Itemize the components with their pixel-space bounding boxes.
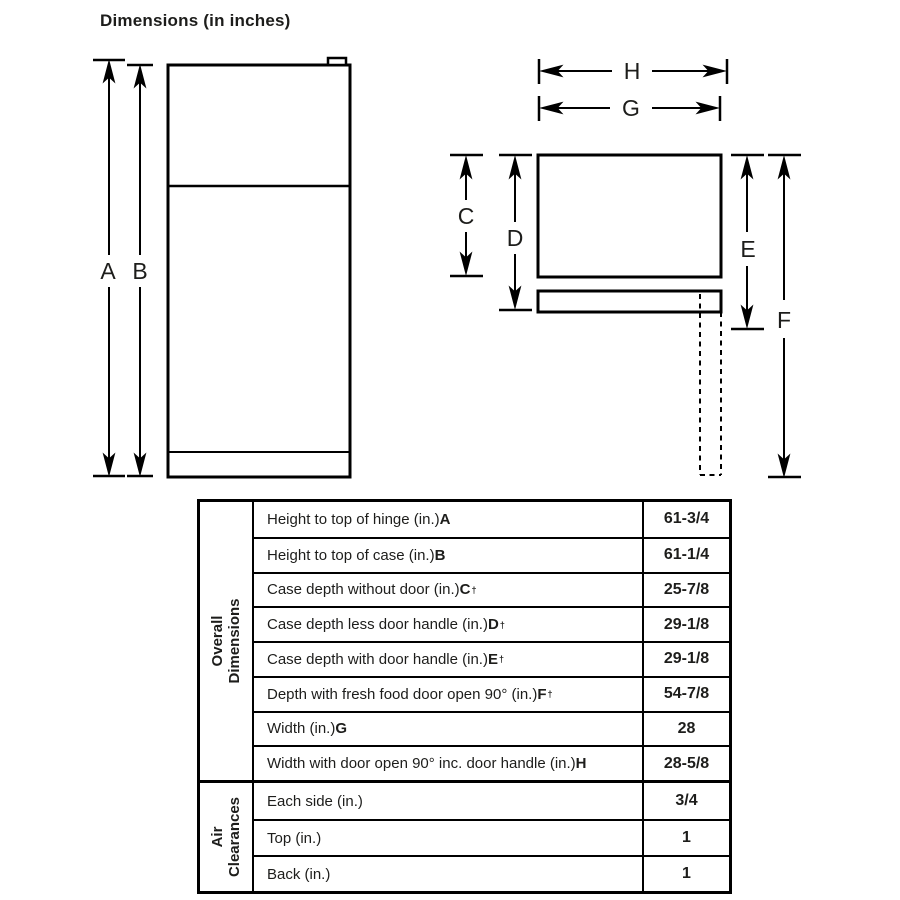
case-top-view-outline <box>538 155 721 277</box>
row-value: 28-5/8 <box>642 747 729 780</box>
refrigerator-front-outline <box>168 58 350 477</box>
door-top-view-outline <box>538 291 721 312</box>
row-value: 3/4 <box>642 783 729 819</box>
spec-sheet-page: { "header": { "title": "Dimensions (in i… <box>0 0 900 900</box>
row-description: Case depth with door handle (in.) E† <box>254 643 642 676</box>
row-description: Each side (in.) <box>254 783 642 819</box>
dimensions-table: Overall Dimensions Height to top of hing… <box>197 499 732 894</box>
dim-label-b: B <box>132 258 147 284</box>
dim-label-e: E <box>740 236 755 262</box>
row-value: 1 <box>642 821 729 855</box>
table-group-overall-dimensions: Overall Dimensions Height to top of hing… <box>200 502 729 780</box>
row-description: Width with door open 90° inc. door handl… <box>254 747 642 780</box>
table-rows-air: Each side (in.) 3/4 Top (in.) 1 Back (in… <box>254 783 729 891</box>
row-description: Case depth without door (in.) C† <box>254 574 642 607</box>
table-row: Width with door open 90° inc. door handl… <box>254 745 729 780</box>
table-row: Top (in.) 1 <box>254 819 729 855</box>
dim-label-f: F <box>777 307 791 333</box>
dim-label-h: H <box>624 58 641 84</box>
table-row: Depth with fresh food door open 90° (in.… <box>254 676 729 711</box>
row-description: Depth with fresh food door open 90° (in.… <box>254 678 642 711</box>
table-row: Case depth less door handle (in.) D† 29-… <box>254 606 729 641</box>
door-handle-dashed-outline <box>700 294 721 475</box>
row-description: Back (in.) <box>254 857 642 891</box>
group-label-air-clearances: Air Clearances <box>200 783 254 891</box>
row-value: 29-1/8 <box>642 643 729 676</box>
row-value: 29-1/8 <box>642 608 729 641</box>
row-description: Case depth less door handle (in.) D† <box>254 608 642 641</box>
table-row: Height to top of hinge (in.) A 61-3/4 <box>254 502 729 537</box>
table-group-air-clearances: Air Clearances Each side (in.) 3/4 Top (… <box>200 780 729 891</box>
hinge-cap <box>328 58 346 65</box>
table-row: Case depth without door (in.) C† 25-7/8 <box>254 572 729 607</box>
dim-label-a: A <box>100 258 116 284</box>
dim-label-c: C <box>458 203 475 229</box>
row-description: Height to top of hinge (in.) A <box>254 502 642 537</box>
row-value: 1 <box>642 857 729 891</box>
front-view-diagram: A B <box>93 58 350 477</box>
row-value: 61-1/4 <box>642 539 729 572</box>
table-row: Width (in.) G 28 <box>254 711 729 746</box>
row-value: 28 <box>642 713 729 746</box>
row-description: Width (in.) G <box>254 713 642 746</box>
row-description: Height to top of case (in.) B <box>254 539 642 572</box>
group-label-text: Air Clearances <box>209 797 244 877</box>
dim-label-d: D <box>507 225 524 251</box>
row-value: 54-7/8 <box>642 678 729 711</box>
row-value: 61-3/4 <box>642 502 729 537</box>
table-rows-overall: Height to top of hinge (in.) A 61-3/4 He… <box>254 502 729 780</box>
group-label-overall-dimensions: Overall Dimensions <box>200 502 254 780</box>
dimensions-diagram: A B H <box>0 0 900 500</box>
dim-label-g: G <box>622 95 640 121</box>
table-row: Height to top of case (in.) B 61-1/4 <box>254 537 729 572</box>
table-row: Case depth with door handle (in.) E† 29-… <box>254 641 729 676</box>
group-label-text: Overall Dimensions <box>209 598 244 683</box>
row-description: Top (in.) <box>254 821 642 855</box>
row-value: 25-7/8 <box>642 574 729 607</box>
table-row: Each side (in.) 3/4 <box>254 783 729 819</box>
top-view-diagram: H G C D <box>450 58 801 477</box>
table-row: Back (in.) 1 <box>254 855 729 891</box>
